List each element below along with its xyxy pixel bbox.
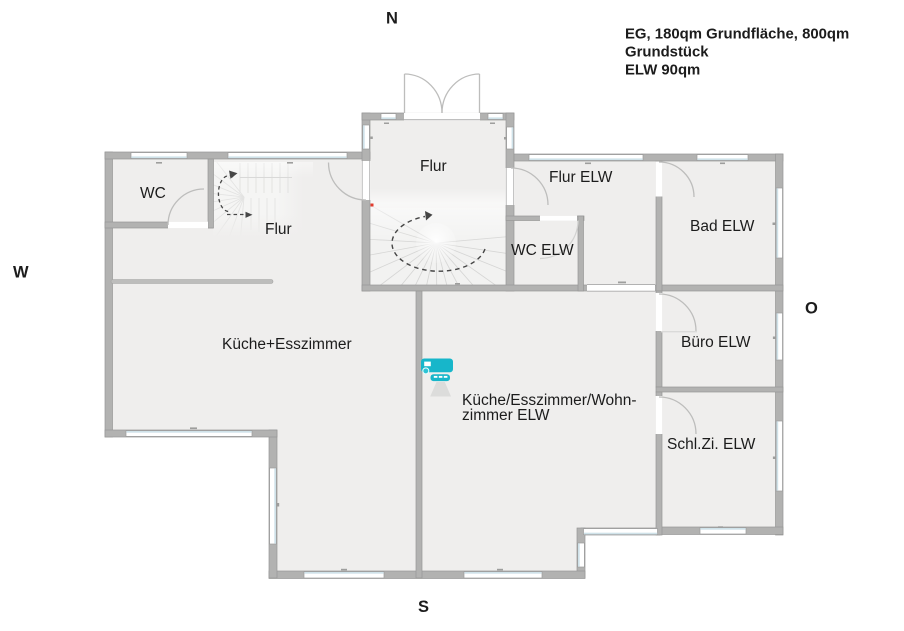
svg-text:O: O: [805, 300, 818, 318]
svg-text:Grundstück: Grundstück: [625, 45, 709, 61]
svg-text:Flur ELW: Flur ELW: [549, 169, 613, 186]
svg-text:EG, 180qm Grundfläche, 800qm: EG, 180qm Grundfläche, 800qm: [625, 27, 849, 43]
svg-text:Schl.Zi. ELW: Schl.Zi. ELW: [667, 436, 756, 453]
svg-text:zimmer ELW: zimmer ELW: [462, 407, 550, 424]
svg-text:Bad ELW: Bad ELW: [690, 218, 755, 235]
svg-text:W: W: [13, 264, 29, 282]
svg-text:Flur: Flur: [420, 158, 447, 175]
svg-text:N: N: [386, 10, 398, 28]
svg-text:ELW 90qm: ELW 90qm: [625, 63, 700, 79]
svg-text:Büro ELW: Büro ELW: [681, 334, 751, 351]
svg-text:WC: WC: [140, 185, 166, 202]
svg-text:Flur: Flur: [265, 221, 292, 238]
svg-text:WC ELW: WC ELW: [511, 242, 574, 259]
svg-text:Küche+Esszimmer: Küche+Esszimmer: [222, 336, 352, 353]
svg-text:S: S: [418, 598, 429, 616]
